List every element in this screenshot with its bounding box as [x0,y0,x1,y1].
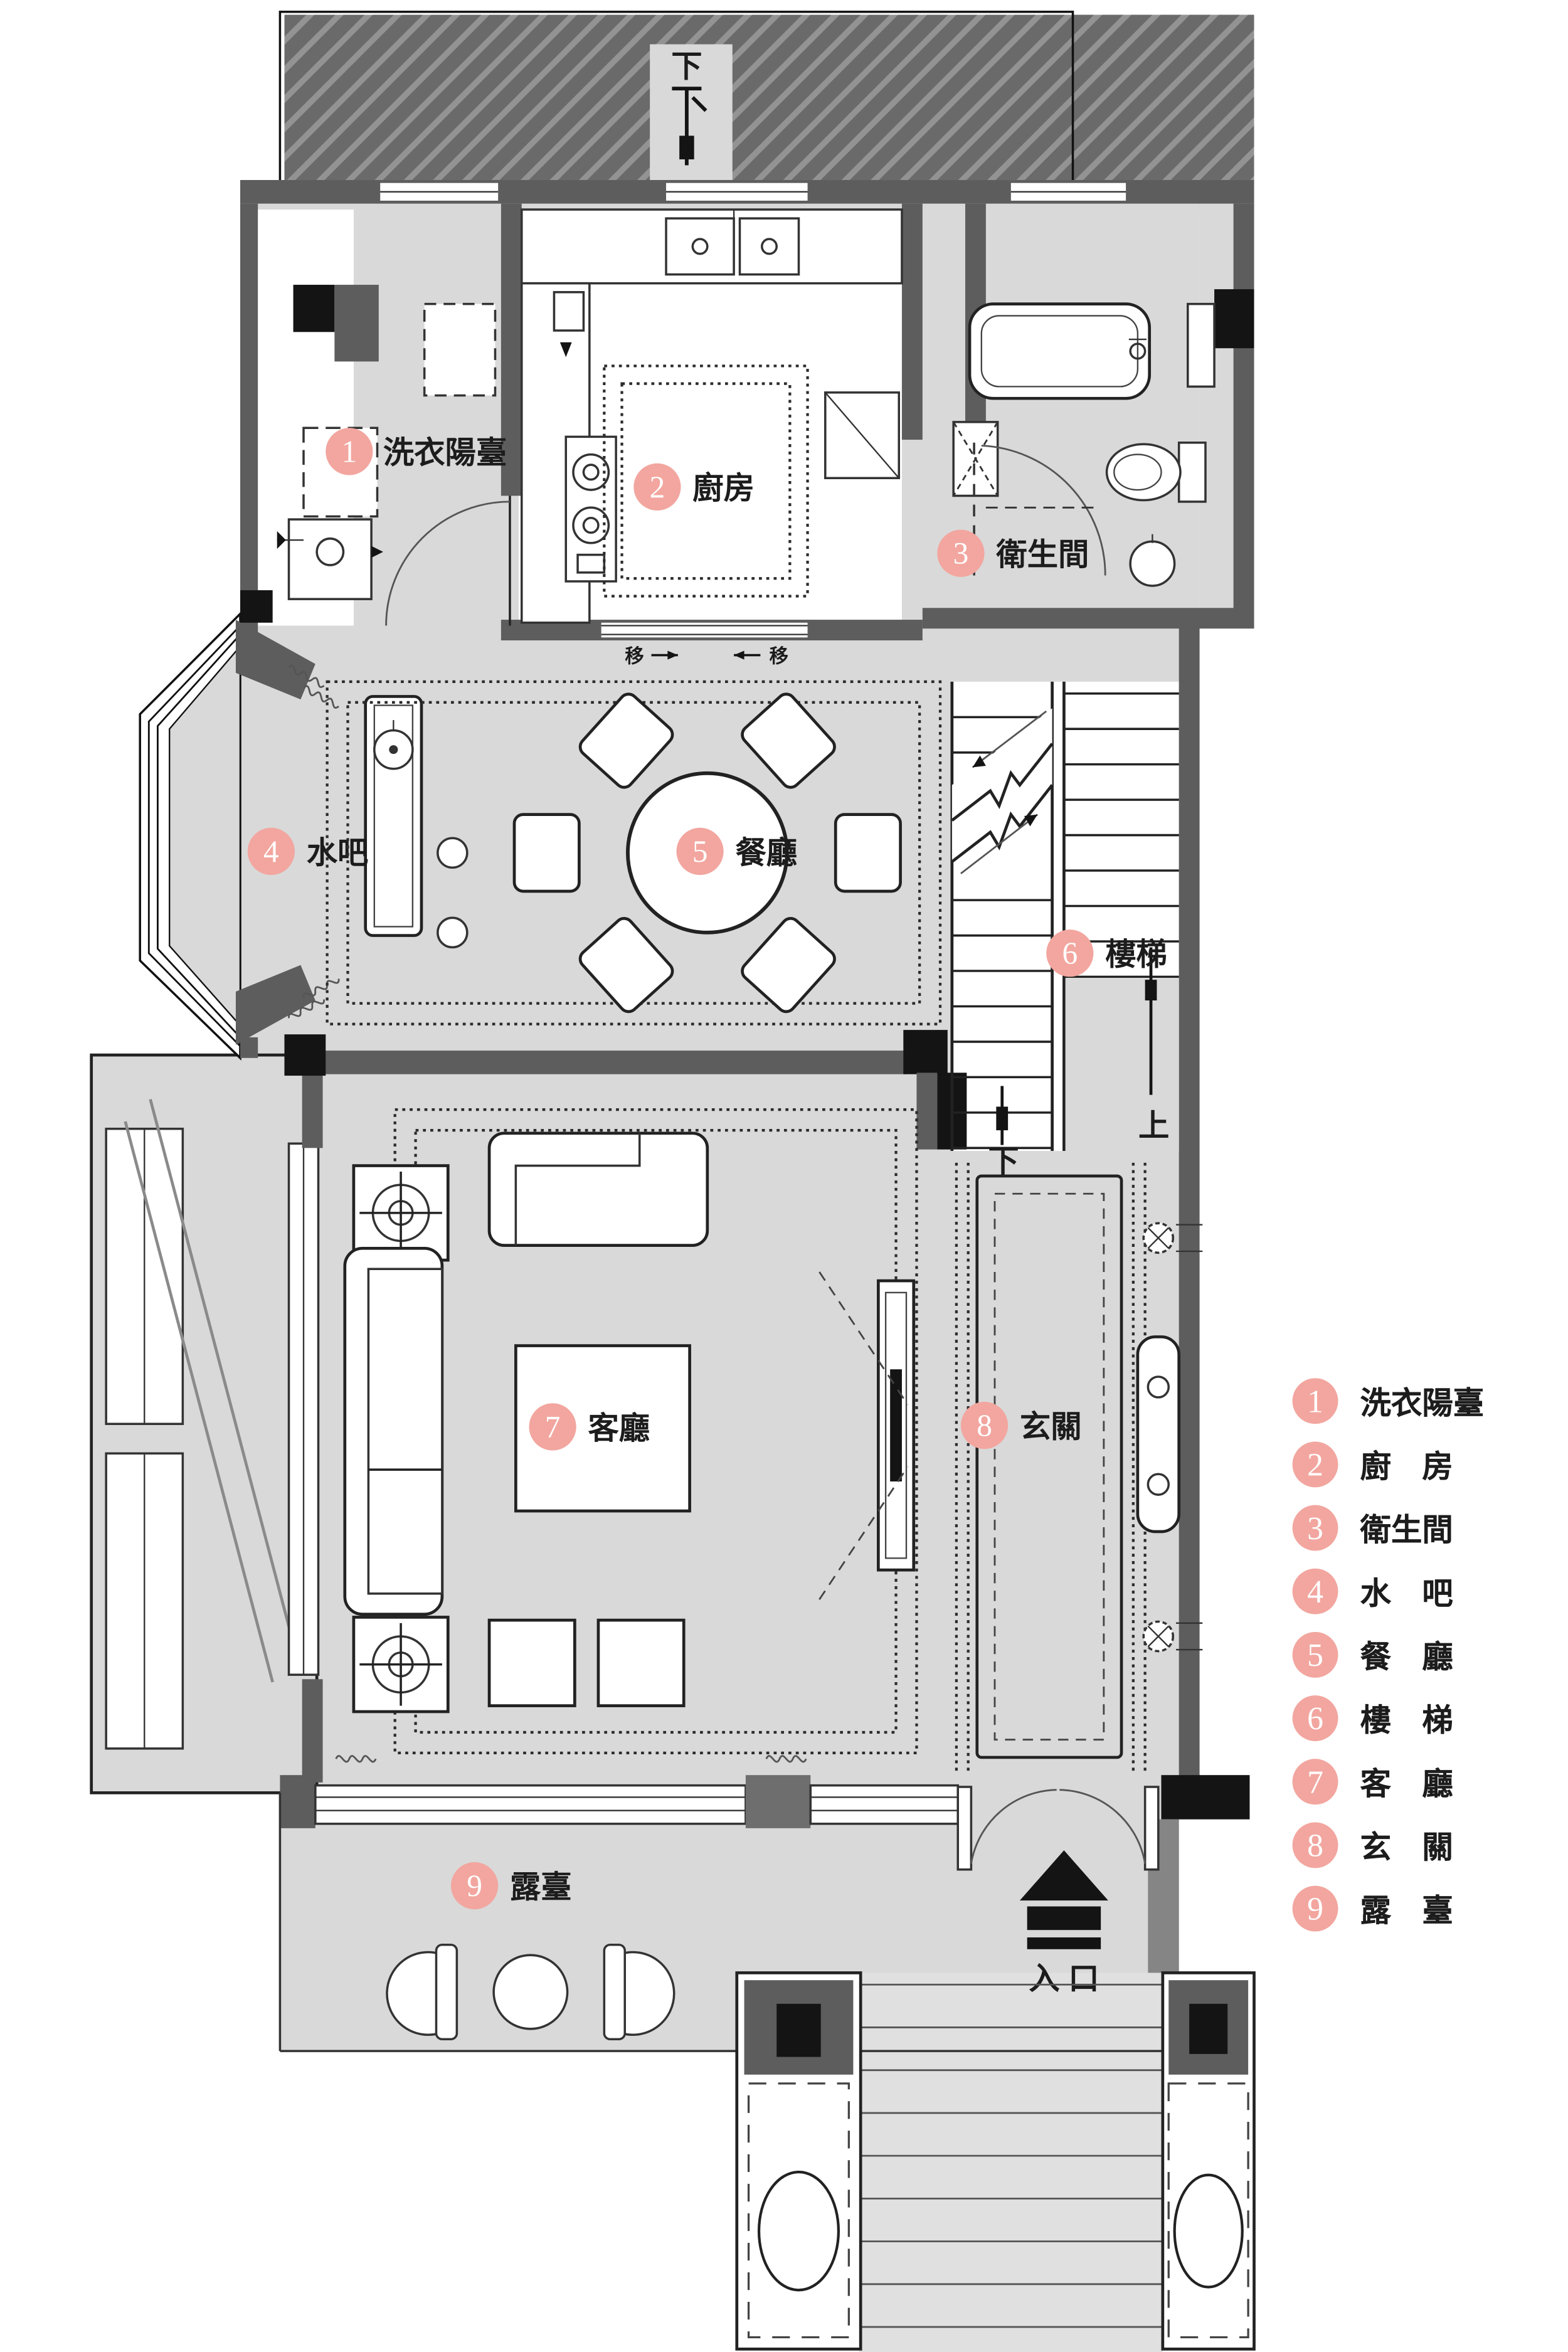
legend-label-water-bar: 水 吧 [1360,1569,1453,1614]
legend-label-bathroom: 衛生間 [1360,1506,1453,1550]
room-label-terrace: 露臺 [510,1870,572,1904]
planter-left [737,1973,861,2349]
light-symbol-top [1143,1223,1173,1253]
room-label-stairs: 樓梯 [1105,938,1167,972]
legend-marker-3: 3 [1293,1505,1338,1551]
legend-marker-8: 8 [1293,1822,1338,1868]
room-marker-6-num: 6 [1062,936,1078,970]
speaker-bottom [354,1617,448,1712]
room-label-kitchen: 廚房 [692,471,755,506]
entrance-label: 入 口 [1029,1961,1099,1996]
legend: 1 洗衣陽臺 2 廚 房 3 衛生間 4 水 吧 5 餐 廳 6 樓 梯 7 客… [1293,1369,1528,1940]
sofa [345,1248,442,1614]
room-label-entry: 玄關 [1020,1409,1082,1444]
balcony-down-label: 下 [671,49,702,83]
legend-label-entry: 玄 關 [1360,1823,1453,1868]
legend-row-entry: 8 玄 關 [1293,1813,1528,1877]
legend-marker-4: 4 [1293,1569,1338,1614]
room-marker-3-num: 3 [953,536,969,571]
room-label-living: 客廳 [588,1411,650,1446]
room-marker-2-num: 2 [650,470,665,504]
legend-row-terrace: 9 露 臺 [1293,1877,1528,1941]
legend-row-stairs: 6 樓 梯 [1293,1687,1528,1750]
stair-down-label: 下 [988,1144,1019,1179]
legend-row-kitchen: 2 廚 房 [1293,1433,1528,1496]
floor-plan-page: 下 1 洗衣陽臺 2 廚房 移 移 [0,0,1568,2352]
legend-label-stairs: 樓 梯 [1360,1696,1453,1740]
room-marker-1-num: 1 [342,434,358,469]
room-label-dining: 餐廳 [735,835,797,870]
slide-mark-right: 移 [769,645,788,667]
light-symbol-bottom [1143,1622,1173,1651]
planter-right [1163,1973,1254,2349]
terrace-table [494,1955,567,2029]
legend-row-laundry: 1 洗衣陽臺 [1293,1369,1528,1433]
room-marker-5-num: 5 [692,834,708,869]
legend-marker-6: 6 [1293,1695,1338,1741]
legend-row-living: 7 客 廳 [1293,1750,1528,1813]
legend-marker-2: 2 [1293,1441,1338,1487]
speaker-top [354,1166,448,1261]
legend-row-water-bar: 4 水 吧 [1293,1560,1528,1623]
slide-mark-left: 移 [625,645,644,667]
legend-label-dining: 餐 廳 [1360,1633,1453,1677]
legend-label-terrace: 露 臺 [1360,1887,1453,1931]
room-marker-4-num: 4 [263,834,279,869]
room-label-bathroom: 衛生間 [995,538,1089,572]
chaise [489,1133,707,1246]
legend-marker-1: 1 [1293,1378,1338,1424]
legend-row-dining: 5 餐 廳 [1293,1623,1528,1687]
legend-row-bathroom: 3 衛生間 [1293,1496,1528,1560]
room-marker-8-num: 8 [977,1408,992,1443]
console [1138,1337,1179,1532]
room-label-laundry: 洗衣陽臺 [383,436,507,470]
room-label-water-bar: 水吧 [307,835,369,870]
room-marker-9-num: 9 [467,1868,482,1903]
stair-up-label: 上 [1138,1108,1169,1143]
side-table-1 [489,1620,575,1705]
legend-marker-7: 7 [1293,1759,1338,1804]
legend-label-living: 客 廳 [1360,1759,1453,1804]
legend-marker-9: 9 [1293,1886,1338,1932]
floor-plan-drawing: 下 1 洗衣陽臺 2 廚房 移 移 [0,0,1568,2352]
legend-label-laundry: 洗衣陽臺 [1360,1379,1484,1424]
room-marker-7-num: 7 [545,1409,561,1444]
legend-marker-5: 5 [1293,1632,1338,1678]
side-table-2 [598,1620,684,1705]
legend-label-kitchen: 廚 房 [1360,1443,1453,1487]
